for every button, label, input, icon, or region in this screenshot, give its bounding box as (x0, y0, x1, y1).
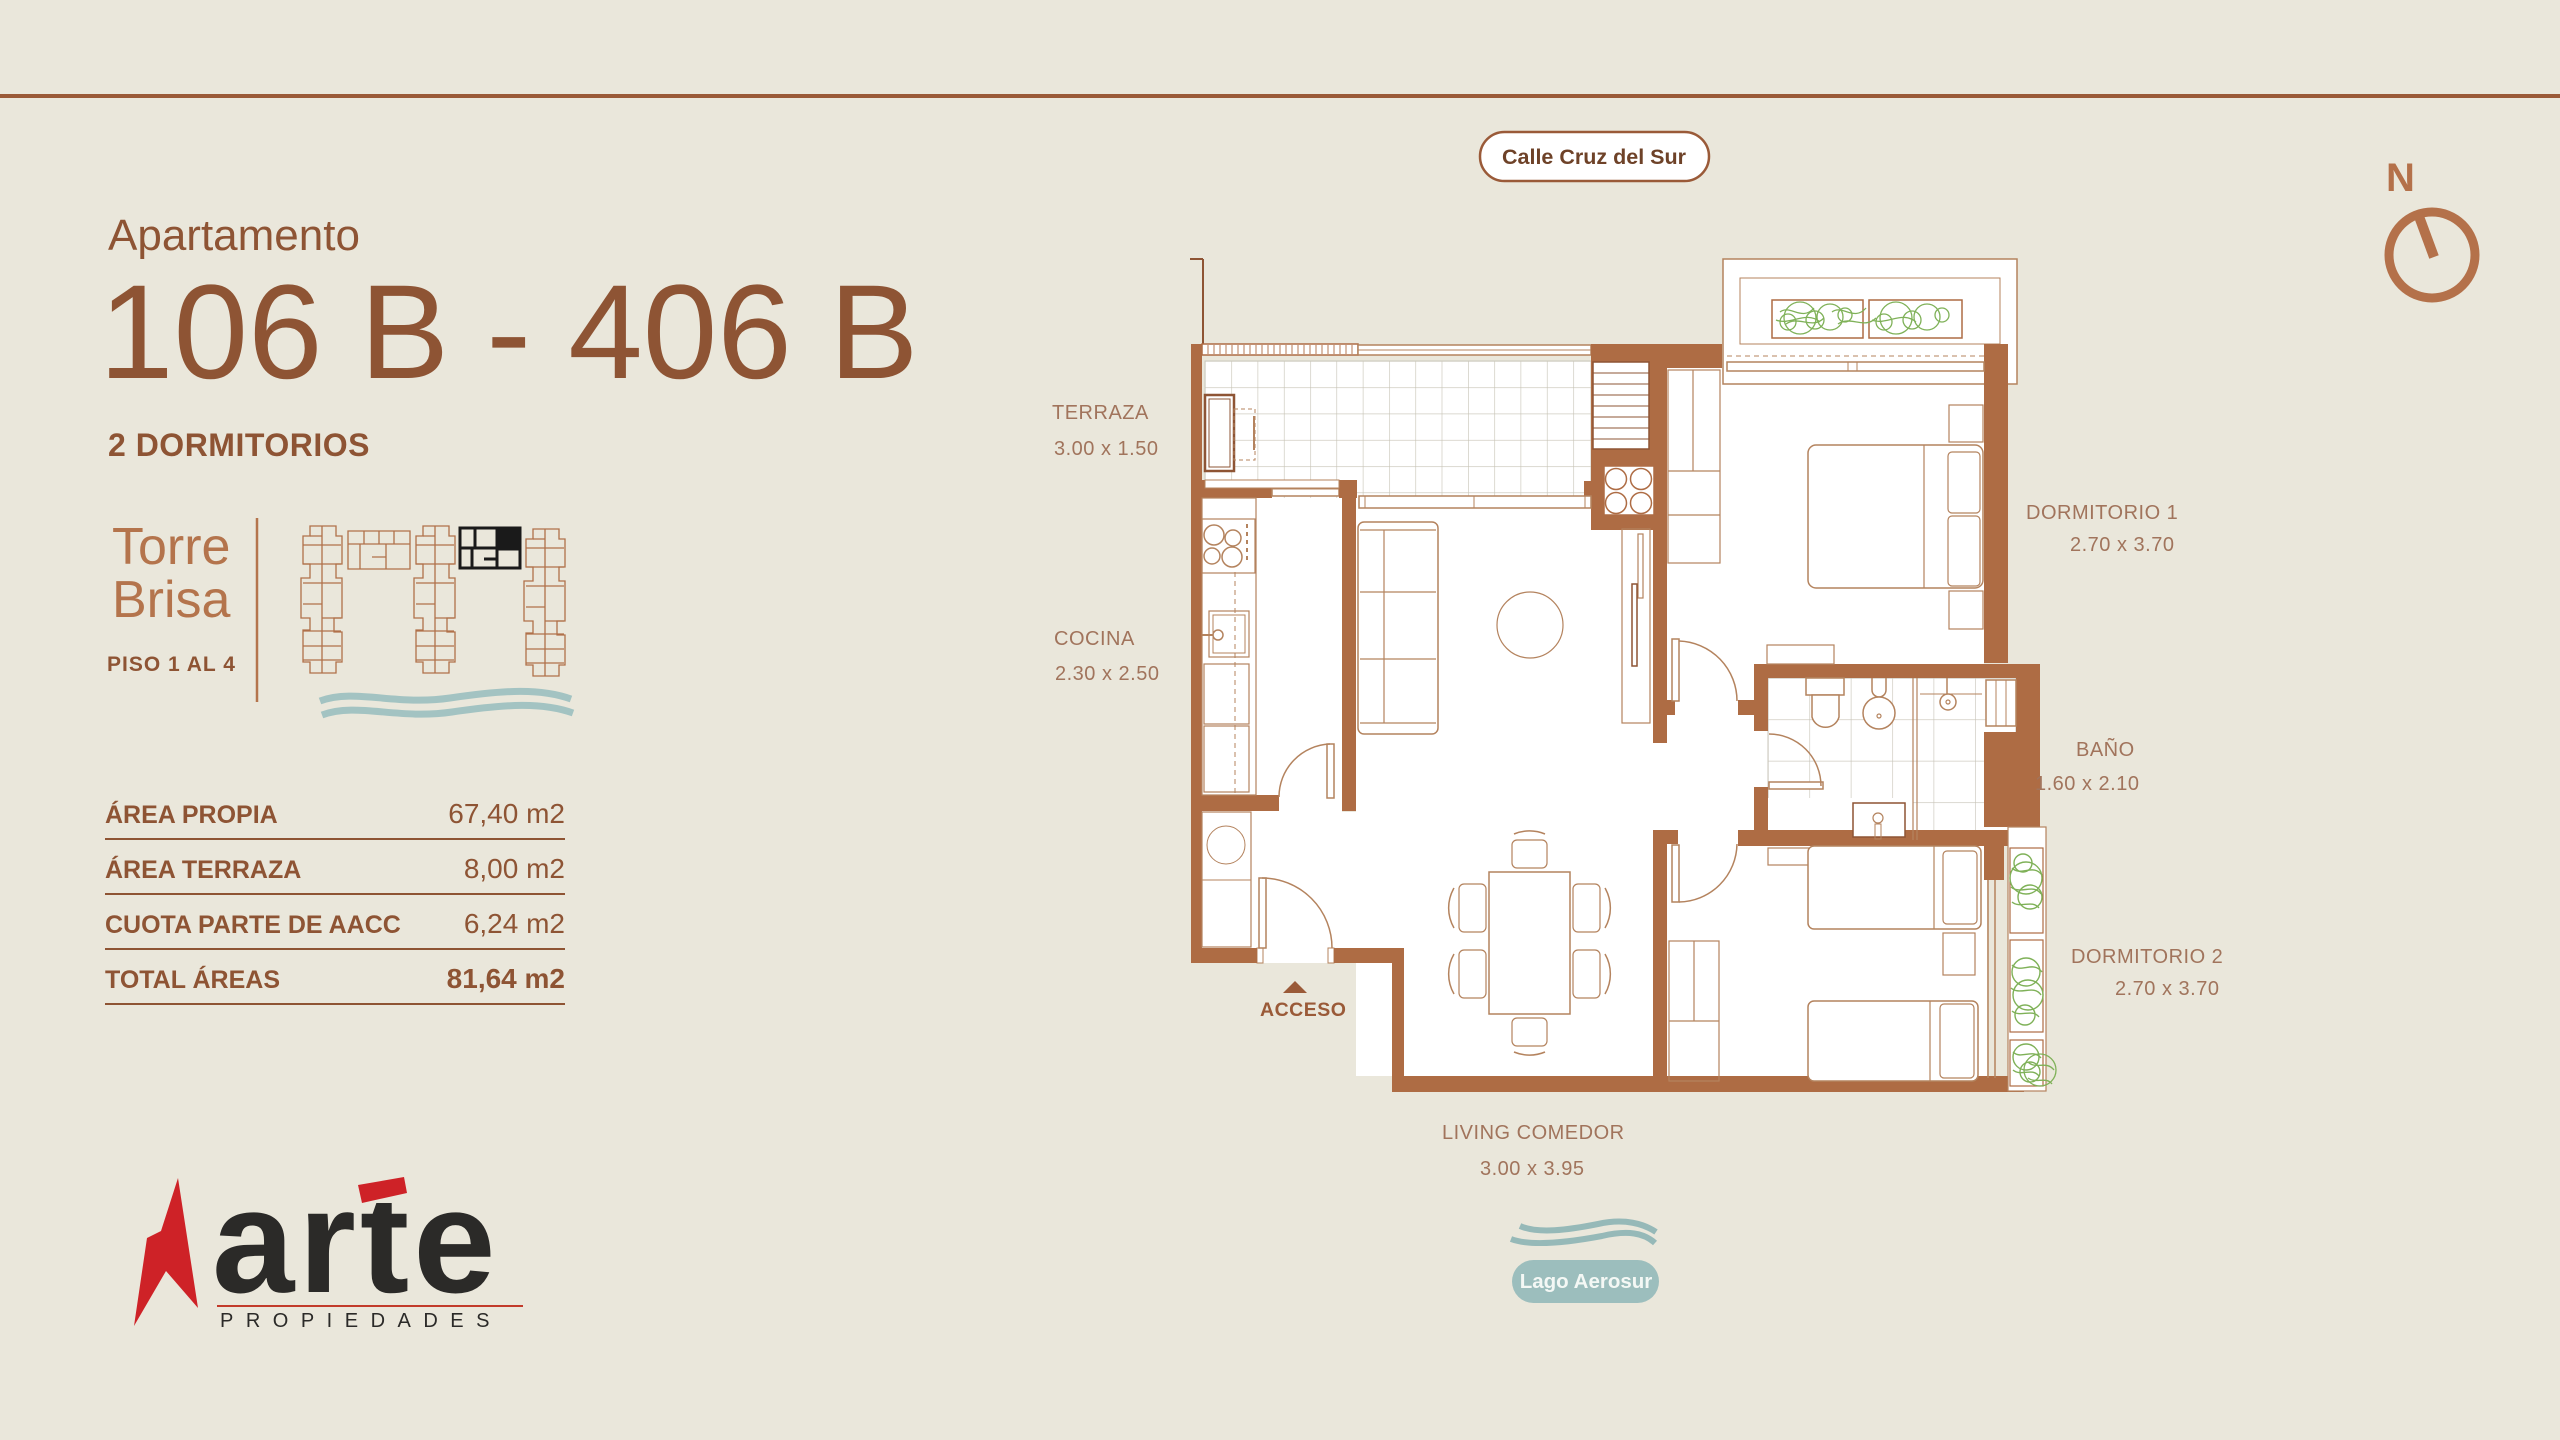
svg-text:N: N (2386, 156, 2415, 200)
svg-text:Lago Aerosur: Lago Aerosur (1520, 1270, 1653, 1293)
svg-text:2.30 x 2.50: 2.30 x 2.50 (1055, 663, 1159, 685)
svg-text:TERRAZA: TERRAZA (1052, 402, 1149, 424)
svg-text:DORMITORIO 1: DORMITORIO 1 (2026, 502, 2178, 524)
svg-text:DORMITORIO 2: DORMITORIO 2 (2071, 946, 2223, 968)
svg-text:3.00 x 3.95: 3.00 x 3.95 (1480, 1158, 1584, 1180)
svg-text:1.60 x 2.10: 1.60 x 2.10 (2035, 773, 2139, 795)
svg-text:ACCESO: ACCESO (1260, 999, 1346, 1021)
svg-text:2.70 x 3.70: 2.70 x 3.70 (2070, 534, 2174, 556)
svg-text:Calle Cruz del Sur: Calle Cruz del Sur (1502, 145, 1687, 169)
svg-text:COCINA: COCINA (1054, 628, 1135, 650)
svg-text:3.00 x 1.50: 3.00 x 1.50 (1054, 438, 1158, 460)
svg-text:LIVING COMEDOR: LIVING COMEDOR (1442, 1122, 1625, 1144)
svg-text:BAÑO: BAÑO (2076, 737, 2135, 761)
svg-text:2.70 x 3.70: 2.70 x 3.70 (2115, 978, 2219, 1000)
